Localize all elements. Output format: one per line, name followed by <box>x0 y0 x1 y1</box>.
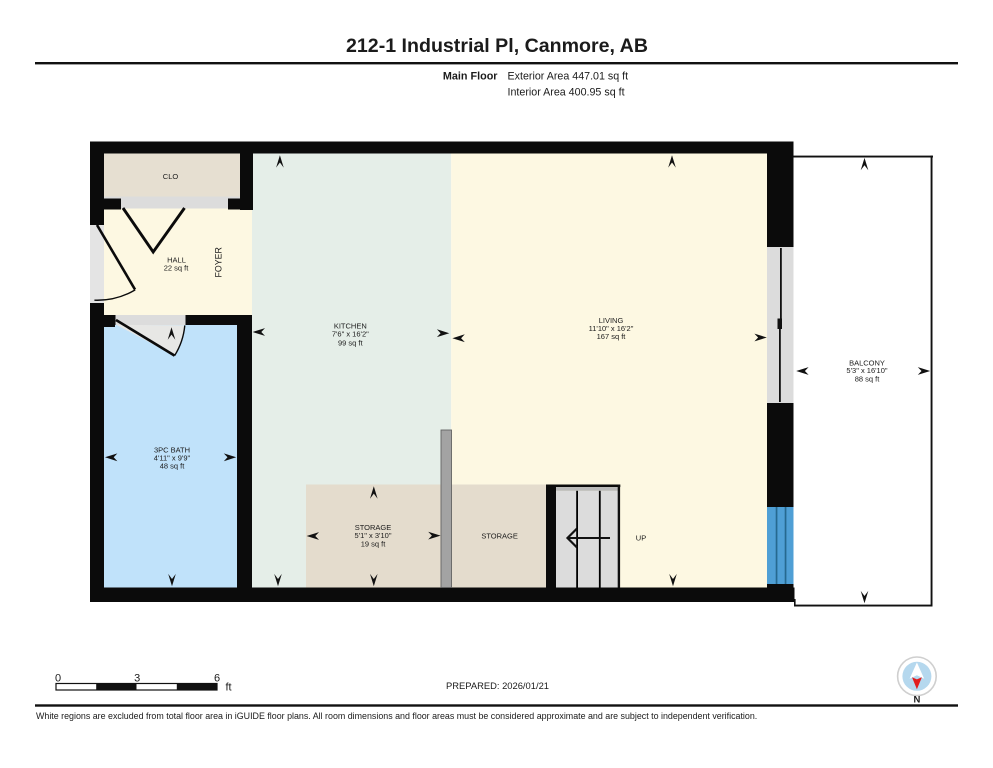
svg-text:N: N <box>913 695 920 706</box>
svg-text:FOYER: FOYER <box>214 247 224 277</box>
svg-text:48 sq ft: 48 sq ft <box>160 462 186 471</box>
svg-text:3: 3 <box>134 672 140 684</box>
svg-text:88 sq ft: 88 sq ft <box>855 375 881 384</box>
svg-text:Main Floor: Main Floor <box>443 71 498 83</box>
svg-text:CLO: CLO <box>163 172 179 181</box>
svg-text:PREPARED: 2026/01/21: PREPARED: 2026/01/21 <box>446 680 549 691</box>
svg-text:6: 6 <box>214 672 220 684</box>
svg-text:White regions are excluded fro: White regions are excluded from total fl… <box>36 711 757 721</box>
svg-text:ft: ft <box>226 682 232 694</box>
svg-text:Interior Area 400.95 sq ft: Interior Area 400.95 sq ft <box>508 87 625 99</box>
svg-text:167 sq ft: 167 sq ft <box>597 332 627 341</box>
svg-text:22 sq ft: 22 sq ft <box>164 264 190 273</box>
svg-text:UP: UP <box>636 534 646 543</box>
svg-text:99 sq ft: 99 sq ft <box>338 338 364 347</box>
svg-text:0: 0 <box>55 672 61 684</box>
svg-text:Exterior Area 447.01 sq ft: Exterior Area 447.01 sq ft <box>508 71 629 83</box>
svg-text:19 sq ft: 19 sq ft <box>361 539 387 548</box>
svg-text:STORAGE: STORAGE <box>481 531 518 540</box>
svg-text:212-1 Industrial Pl, Canmore,: 212-1 Industrial Pl, Canmore, AB <box>346 35 648 57</box>
